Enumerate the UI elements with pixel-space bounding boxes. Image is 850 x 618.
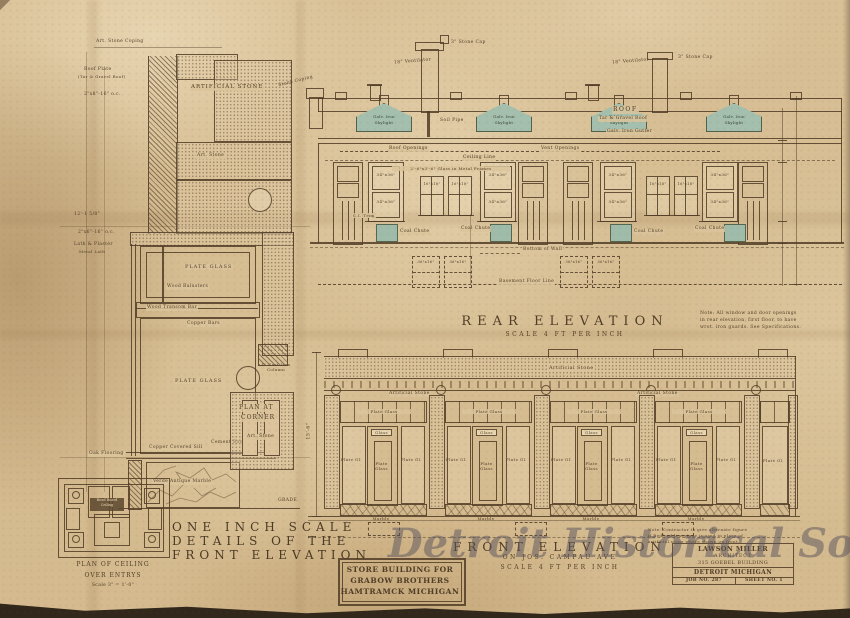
sl [539, 201, 540, 240]
t: Skylight [357, 120, 411, 125]
dm [567, 183, 589, 198]
marble-base [760, 504, 790, 516]
label-copper-sill: Copper Covered Sill [148, 445, 204, 451]
label-roof-joists: 2"x8"-16" o.c. [84, 92, 121, 98]
transom-windows: Plate Glass [550, 401, 637, 423]
ln [796, 96, 797, 286]
rear-door [563, 162, 593, 245]
marble-base [340, 504, 427, 516]
rear-elevation-title: REAR ELEVATION [415, 314, 715, 330]
sl [342, 201, 343, 240]
rear-small-window: 16"x18" [646, 176, 670, 216]
parapet-post [680, 92, 692, 100]
blueprint-sheet: Art. Stone Coping ARTIFICIAL STONE Art. … [0, 0, 850, 618]
ceiling-label-box: Bead BoardCeiling [90, 498, 124, 511]
display-window [552, 426, 576, 504]
stone-pier [262, 232, 294, 356]
entry-door: GlassPlate Glass [577, 426, 608, 506]
label-lath-plaster: Lath & Plaster [74, 242, 113, 248]
ln [367, 84, 382, 86]
detail-title-1: ONE INCH SCALE [172, 520, 356, 535]
coal-chute [490, 224, 512, 242]
project-line-3: HAMTRAMCK MICHIGAN [340, 587, 460, 596]
label-coal-chute: Coal Chute [399, 229, 430, 235]
dm [742, 183, 764, 198]
door-sign: Glass [476, 429, 497, 436]
display-window [506, 426, 530, 504]
label-plate-glass-lower: PLATE GLASS [174, 378, 223, 384]
display-window [716, 426, 740, 504]
ln [308, 516, 800, 517]
label-plate-glass: Plate Glass [672, 409, 726, 414]
ln [104, 66, 105, 492]
roof-ventilator [588, 85, 599, 101]
label-plate-glass: Plate Glass [567, 409, 621, 414]
door-glass-panel [374, 441, 392, 501]
dash [593, 272, 619, 273]
u [706, 166, 734, 190]
label-corner: CORNER [240, 414, 276, 422]
label-art-stone-coping: Art. Stone Coping [96, 39, 144, 45]
door-sign: Glass [581, 429, 602, 436]
galv-iron-skylight: Galv. IronSkylight [356, 103, 412, 132]
rear-small-window: 16"x18" [420, 176, 444, 216]
dash [413, 272, 439, 273]
dash [445, 272, 471, 273]
dash [480, 253, 520, 254]
label-plate-glass: Plate Glass [583, 461, 600, 471]
label-plate-glass: Plate Glass [357, 409, 411, 414]
label-stone-cap: 3" Stone Cap [451, 40, 486, 46]
ceiling-light [72, 491, 80, 499]
rear-door [333, 162, 363, 245]
t: 34"x36" [703, 199, 737, 204]
ln [792, 284, 801, 285]
sl [533, 201, 534, 240]
label-vent-openings: Vent Openings [540, 146, 581, 152]
t: 34"x36" [481, 199, 515, 204]
label-roof: ROOF [612, 106, 639, 114]
ln [778, 221, 787, 222]
ln [418, 215, 474, 216]
architect-city: DETROIT MICHIGAN [673, 569, 793, 577]
dt [567, 166, 589, 182]
t: Galv. Iron [477, 114, 531, 119]
galv-iron-skylight: Galv. IronSkylight [706, 103, 762, 132]
ln [795, 356, 796, 516]
t: 34"x36" [703, 172, 737, 177]
marble-base [655, 504, 742, 516]
dt [742, 166, 764, 182]
ceiling-panel [66, 508, 80, 530]
label-plate-gl: Plate Gl. [656, 457, 677, 462]
coal-chute [724, 224, 746, 242]
t: 34"x36" [369, 172, 403, 177]
label-ventilator: 18" Ventilator [612, 57, 650, 66]
ln [131, 244, 132, 456]
chimney [421, 49, 439, 113]
watermark: Detroit Historical Society [388, 520, 850, 567]
entry-door: GlassPlate Glass [682, 426, 713, 506]
ln [778, 140, 787, 141]
u [604, 166, 632, 190]
ln [782, 108, 783, 286]
sl [572, 201, 573, 240]
rosette [331, 385, 341, 395]
ln [673, 567, 793, 568]
storefront-bay: Plate Glass Plate Gl. Plate Gl. GlassPla… [548, 395, 639, 523]
sheet-number: SHEET NO. 1 [737, 578, 791, 584]
label-plate-gl: Plate Gl. [506, 457, 527, 462]
mh [647, 194, 669, 195]
ln [318, 98, 842, 99]
dt [522, 166, 544, 182]
label-height-dim: 12'-1 5/8" [74, 212, 100, 218]
parapet-post [450, 92, 462, 100]
parapet-post [335, 92, 347, 100]
display-window [762, 426, 788, 504]
l [372, 192, 400, 218]
sl [759, 201, 760, 240]
ceiling-corner-panel [144, 488, 160, 504]
dm [522, 183, 544, 198]
door-glass-panel [689, 441, 707, 501]
ceiling-corner-panel [68, 532, 84, 548]
dentil-band [324, 381, 796, 388]
artificial-stone-block [214, 60, 292, 142]
t: 16"x18" [449, 182, 471, 186]
marble-base [445, 504, 532, 516]
label-coal-chute: Coal Chute [694, 226, 725, 232]
rear-elevation-scale: SCALE 4 FT PER INCH [415, 331, 715, 339]
dash [318, 284, 842, 285]
stone-band [176, 142, 292, 180]
storefront-bay: Plate Glass Plate Gl. Plate Gl. GlassPla… [443, 395, 534, 523]
t: 16"x18" [675, 182, 697, 186]
ln [94, 47, 222, 48]
anchor-circle [248, 188, 272, 212]
door-sign: Glass [371, 429, 392, 436]
ceiling-center-inner [104, 522, 120, 538]
ceiling-caption-scale: Scale 3" = 1'-0" [58, 583, 168, 589]
label-gutter: Galv. Iron Gutter [606, 129, 653, 135]
dash [561, 272, 587, 273]
label-oak-flooring: Oak Flooring [88, 451, 125, 457]
label-plate-gl: Plate Gl. [341, 457, 362, 462]
sl [753, 201, 754, 240]
rosette [541, 385, 551, 395]
ln [135, 244, 136, 456]
label-bead-board: Bead Board [97, 498, 118, 502]
sl [348, 201, 349, 240]
ln [477, 221, 517, 222]
mh [675, 194, 697, 195]
sl [354, 201, 355, 240]
ln [778, 162, 787, 163]
dt [337, 166, 359, 182]
ceiling-light [72, 535, 80, 543]
ln [699, 221, 739, 222]
sl [578, 201, 579, 240]
display-window [657, 426, 681, 504]
t: 34"x36" [601, 172, 635, 177]
entry-door: GlassPlate Glass [367, 426, 398, 506]
label-plate-glass: Plate Glass [478, 461, 495, 471]
transom-windows [760, 401, 790, 423]
ln [318, 143, 842, 144]
ln [86, 52, 87, 492]
t: Skylight [707, 120, 761, 125]
label-wood-balusters: Wood Balusters [166, 284, 209, 290]
t: 34"x36" [481, 172, 515, 177]
ln [312, 352, 321, 353]
storefront-bay: Plate Glass Plate Gl. Plate Gl. GlassPla… [653, 395, 744, 523]
label-plate-gl: Plate Gl. [551, 457, 572, 462]
label-cast-iron-column: 4" Cast Iron Column [256, 362, 296, 372]
door-glass-panel [479, 441, 497, 501]
ceiling-corner-panel [144, 532, 160, 548]
rear-door [518, 162, 548, 245]
label-metal-lath: Metal Lath [79, 249, 105, 254]
ln [792, 98, 801, 99]
dm [337, 183, 359, 198]
t: 36"x16" [561, 260, 587, 264]
label-ceiling-line: Ceiling Line [462, 155, 496, 161]
label-coal-chute: Coal Chute [633, 229, 664, 235]
l [604, 192, 632, 218]
corner-shadow [0, 0, 40, 22]
t: Skylight [477, 120, 531, 125]
dash [310, 247, 844, 248]
label-grade: GRADE [278, 498, 297, 504]
t: 36"x16" [445, 260, 471, 264]
t: Galv. Iron [357, 114, 411, 119]
ceiling-caption-2: OVER ENTRYS [58, 572, 168, 580]
label-bottom-of-wall: Bottom of Wall [522, 247, 563, 253]
ceiling-light [148, 535, 156, 543]
sl [747, 201, 748, 240]
label-roof-type: Tar & Gravel Roof [598, 116, 648, 122]
door-sign: Glass [686, 429, 707, 436]
stone-band [176, 180, 292, 234]
chimney-cap-plan [440, 35, 449, 44]
project-line-2: GRABOW BROTHERS [340, 576, 460, 585]
ln [470, 214, 471, 284]
job-number: JOB NO. 287 [675, 578, 733, 584]
label-plan-at: PLAN AT [238, 404, 275, 412]
brick-wall-section [148, 56, 178, 234]
ln [841, 98, 842, 243]
soil-pipe [427, 111, 430, 137]
label-height: 15'-6" [306, 422, 312, 439]
ceiling-light [148, 491, 156, 499]
label-ci-trim: C.I. Trim [352, 213, 376, 218]
ln [644, 215, 700, 216]
label-soil-pipe: Soil Pipe [440, 118, 464, 124]
label-roof-plate: Roof Plate [84, 67, 112, 73]
label-artificial-stone: ARTIFICIAL STONE [190, 84, 264, 91]
display-window [611, 426, 635, 504]
label-plate-glass: Plate Glass [688, 461, 705, 471]
label-ceiling-joists: 2"x6"-16" o.c. [78, 230, 115, 236]
storefront-bay: Plate Glass Plate Gl. Plate Gl. GlassPla… [338, 395, 429, 523]
ceiling-corner-panel [68, 488, 84, 504]
t: 16"x18" [647, 182, 669, 186]
rosette [751, 385, 761, 395]
rear-small-window: 16"x18" [448, 176, 472, 216]
sl [527, 201, 528, 240]
label-plate-glass: Plate Glass [373, 461, 390, 471]
label-plate-gl: Plate Gl. [401, 457, 422, 462]
transom-windows: Plate Glass [340, 401, 427, 423]
t: 36"x16" [413, 260, 439, 264]
t: 36"x16" [593, 260, 619, 264]
ln [735, 577, 736, 584]
display-window [342, 426, 366, 504]
ceiling-caption-1: PLAN OF CEILING [58, 561, 168, 569]
label-plate-gl: Plate Gl. [763, 458, 784, 463]
ln [778, 243, 787, 244]
label-plate-gl: Plate Gl. [611, 457, 632, 462]
transom-windows: Plate Glass [445, 401, 532, 423]
galv-iron-skylight: Galv. IronSkylight [476, 103, 532, 132]
ln [318, 98, 319, 112]
display-window [447, 426, 471, 504]
rear-small-window: 16"x18" [674, 176, 698, 216]
l [706, 192, 734, 218]
rear-window: 34"x36"34"x36" [702, 162, 738, 222]
label-plate-gl: Plate Gl. [446, 457, 467, 462]
parapet-return [309, 97, 323, 129]
ln [316, 352, 317, 516]
mh [449, 194, 471, 195]
ln [318, 138, 842, 139]
transom-windows: Plate Glass [655, 401, 742, 423]
t: 34"x36" [601, 199, 635, 204]
label-plate-glass-upper: PLATE GLASS [184, 264, 233, 270]
ln [365, 221, 405, 222]
label-art-stone: Art. Stone [196, 153, 225, 159]
label-roof-felt: (Tar & Gravel Roof) [78, 74, 125, 79]
t: 16"x18" [421, 182, 443, 186]
label-coal-chute: Coal Chute [460, 226, 491, 232]
ln [585, 84, 600, 86]
display-window [401, 426, 425, 504]
marble-base [550, 504, 637, 516]
label-plate-gl: Plate Gl. [716, 457, 737, 462]
label-basement-floor-line: Basement Floor Line [498, 279, 555, 285]
ln [597, 221, 637, 222]
door-glass-panel [584, 441, 602, 501]
rear-window: 34"x36"34"x36" [600, 162, 636, 222]
parapet-post [565, 92, 577, 100]
ln [318, 143, 319, 243]
entry-door: GlassPlate Glass [472, 426, 503, 506]
label-ceiling: Ceiling [101, 503, 114, 507]
chimney [652, 58, 668, 113]
sl [584, 201, 585, 240]
t: Galv. Iron [707, 114, 761, 119]
mh [421, 194, 443, 195]
dash [325, 160, 835, 161]
pilaster [744, 395, 760, 509]
rear-note-3: wrot. iron guards. See Specifications. [700, 325, 801, 331]
label-artificial-stone: Artificial Stone [548, 365, 595, 371]
label-art-stone-corner: Art. Stone [246, 434, 275, 440]
label-stone-cap: 3" Stone Cap [678, 55, 713, 61]
rosette [436, 385, 446, 395]
label-roof-openings: Roof Openings [388, 146, 429, 152]
ceiling-panel [148, 508, 162, 530]
ln [162, 246, 164, 302]
t: 34"x36" [369, 199, 403, 204]
label-metal-frames: 2'-6"x3'-6" Glass in Metal Frames [392, 166, 510, 171]
label-wood-transom-bar: Wood Transom Bar [146, 305, 198, 311]
ln [310, 242, 844, 244]
l [484, 192, 512, 218]
label-plate-glass: Plate Glass [462, 409, 516, 414]
rear-window: 34"x36"34"x36" [480, 162, 516, 222]
coal-chute [610, 224, 632, 242]
coal-chute [376, 224, 398, 242]
